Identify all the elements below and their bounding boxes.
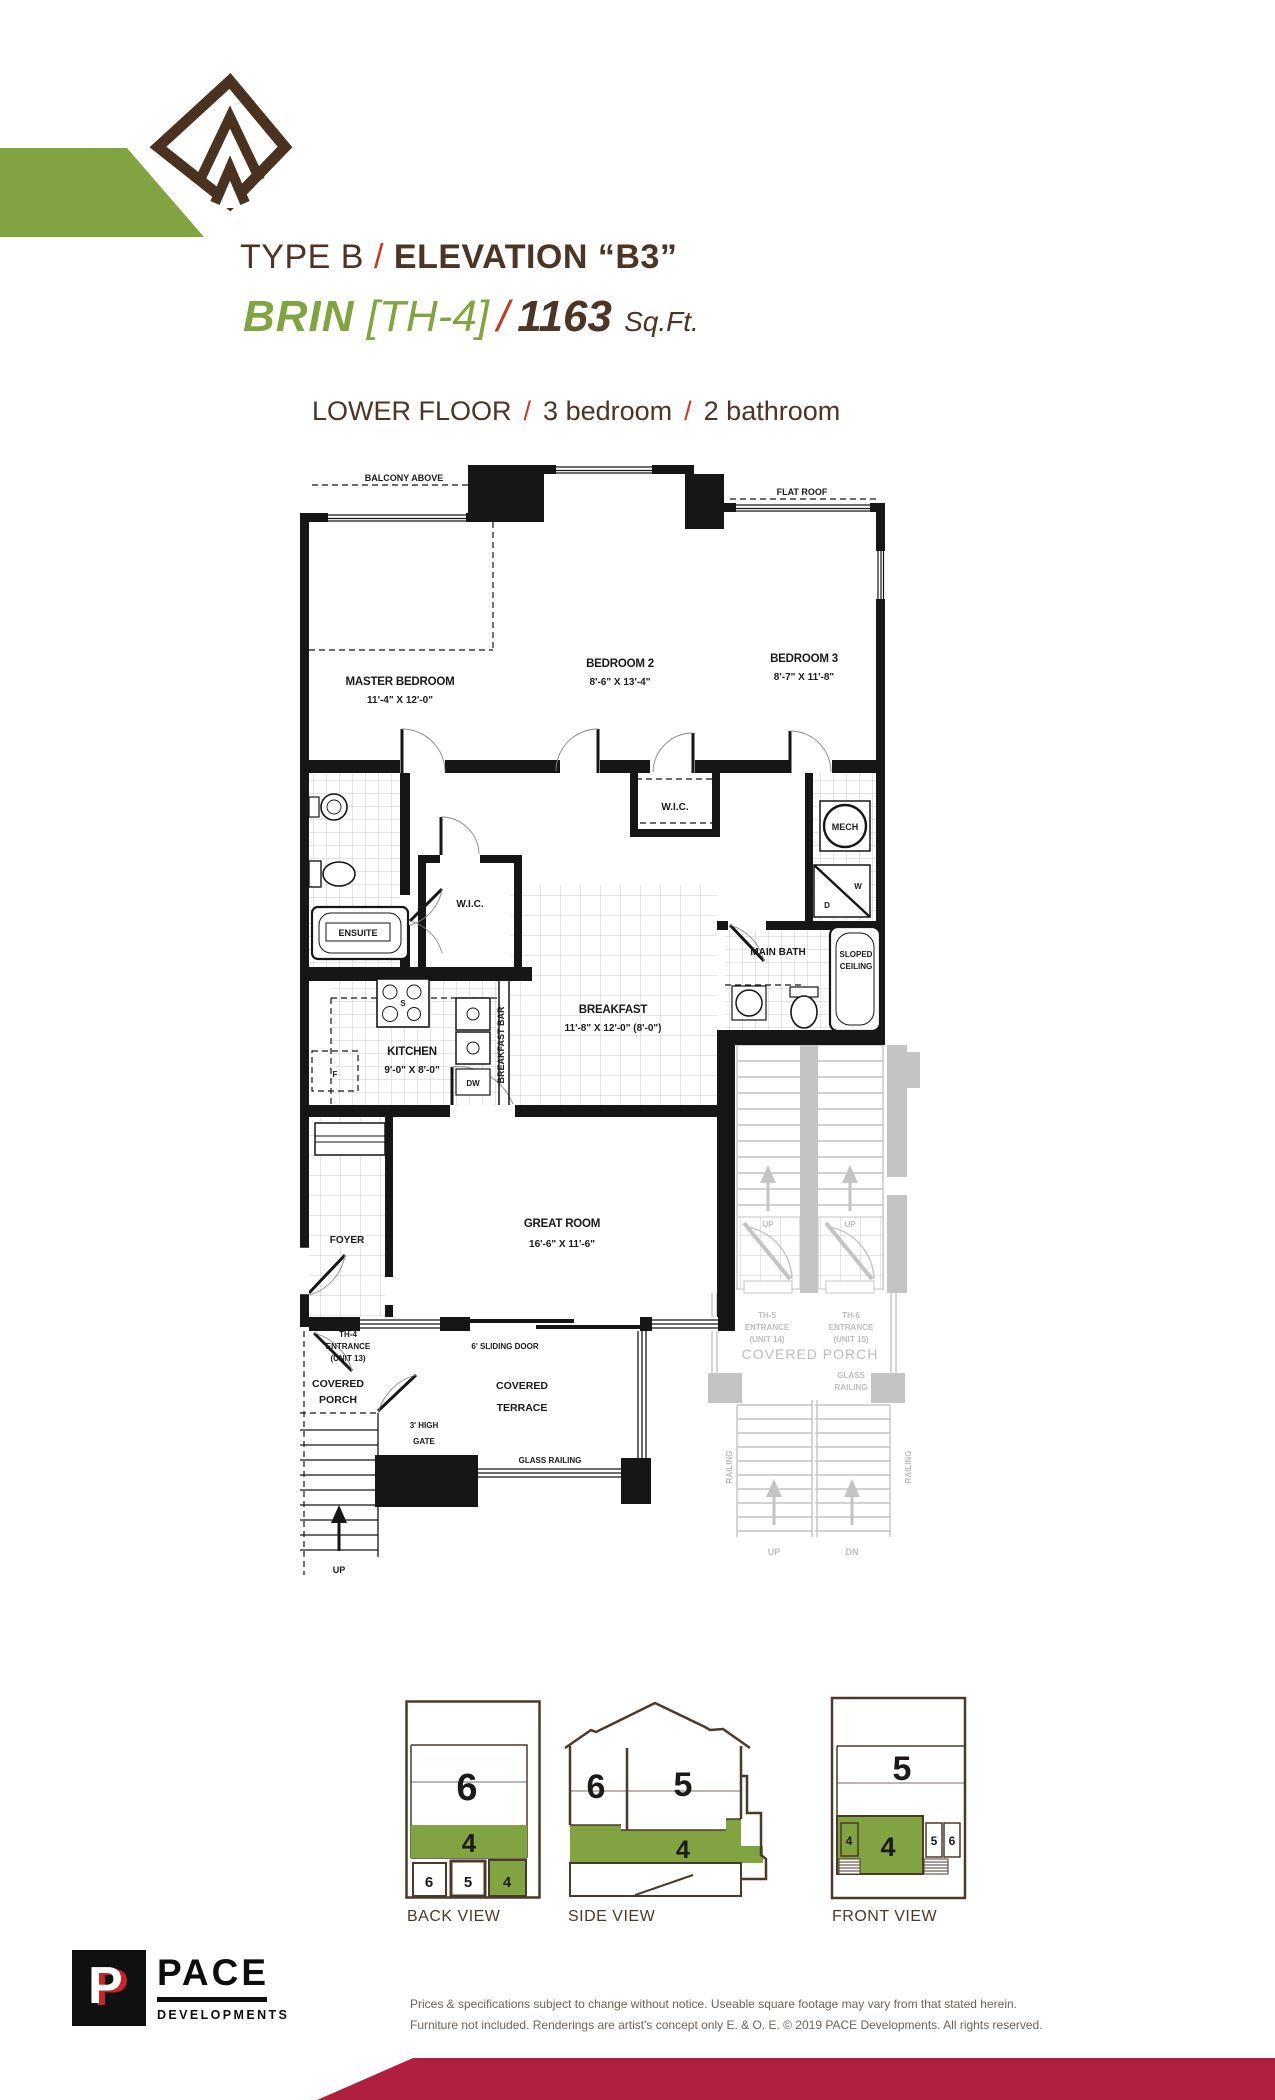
label-ensuite: ENSUITE bbox=[338, 928, 377, 938]
sqft-unit: Sq.Ft. bbox=[624, 306, 699, 337]
label-bedroom3-dims: 8'-7" X 11'-8" bbox=[774, 672, 835, 683]
label-terrace-1: COVERED bbox=[496, 1380, 548, 1392]
back-cell-6: 6 bbox=[425, 1874, 433, 1891]
label-th4: TH-4 bbox=[339, 1330, 357, 1339]
front-cell-5: 5 bbox=[931, 1834, 938, 1848]
label-master-bedroom: MASTER BEDROOM bbox=[345, 676, 454, 688]
label-th4-entrance: ENTRANCE bbox=[326, 1342, 371, 1351]
label-sloped: SLOPED bbox=[840, 950, 873, 959]
slash-3: / bbox=[512, 396, 544, 426]
label-breakfast: BREAKFAST bbox=[579, 1004, 648, 1016]
label-dryer: D bbox=[824, 901, 830, 910]
type-label: TYPE B bbox=[240, 238, 364, 276]
label-wic2: W.I.C. bbox=[661, 802, 688, 813]
label-kitchen-dims: 9'-0" X 8'-0" bbox=[384, 1065, 440, 1076]
slash-2: / bbox=[489, 292, 517, 341]
back-unit-4-band: 4 bbox=[462, 1828, 477, 1858]
label-wic1: W.I.C. bbox=[456, 899, 483, 910]
disclaimer-line-1: Prices & specifications subject to chang… bbox=[410, 1994, 1130, 2015]
neighbor-unit: UP UP TH-5 ENTRANCE (UNIT 14) TH-6 ENTRA… bbox=[708, 1045, 920, 1557]
bedroom-count: 3 bedroom bbox=[543, 396, 672, 426]
label-bedroom2-dims: 8'-6" X 13'-4" bbox=[590, 677, 651, 688]
label-covered: COVERED bbox=[312, 1378, 364, 1390]
label-bedroom2: BEDROOM 2 bbox=[586, 658, 654, 670]
sqft-value: 1163 bbox=[517, 292, 612, 341]
front-cell-4: 4 bbox=[846, 1834, 853, 1848]
back-cell-4: 4 bbox=[503, 1874, 512, 1891]
label-foyer: FOYER bbox=[330, 1235, 365, 1246]
side-unit-6: 6 bbox=[587, 1768, 606, 1806]
label-kitchen: KITCHEN bbox=[387, 1046, 437, 1058]
side-unit-5: 5 bbox=[674, 1766, 693, 1804]
brochure-page: TYPE B/ELEVATION “B3” BRIN [TH-4]/1163 S… bbox=[0, 0, 1275, 2100]
unit-label: [TH-4] bbox=[367, 292, 489, 341]
slash-4: / bbox=[672, 396, 704, 426]
title-line-1: TYPE B/ELEVATION “B3” bbox=[240, 238, 677, 277]
front-view-diagram: 5 4 4 5 6 FRONT VIEW bbox=[830, 1696, 972, 1928]
pace-logo-p-white: P bbox=[88, 1956, 123, 2016]
label-glass-railing: GLASS RAILING bbox=[519, 1456, 582, 1465]
floor-label: LOWER FLOOR bbox=[312, 396, 512, 426]
label-terrace-2: TERRACE bbox=[497, 1402, 548, 1414]
label-gate-1: 3' HIGH bbox=[410, 1421, 439, 1430]
slash-1: / bbox=[364, 238, 394, 276]
front-view-label: FRONT VIEW bbox=[832, 1908, 938, 1925]
neighbor-glass: GLASS bbox=[837, 1371, 865, 1380]
label-sliding-door: 6' SLIDING DOOR bbox=[471, 1342, 538, 1351]
label-balcony-above: BALCONY ABOVE bbox=[365, 473, 444, 483]
neighbor-covered-porch: COVERED PORCH bbox=[742, 1346, 879, 1362]
floor-plan: UP UP TH-5 ENTRANCE (UNIT 14) TH-6 ENTRA… bbox=[300, 455, 920, 1590]
label-master-dims: 11'-4" X 12'-0" bbox=[367, 695, 433, 706]
front-cell-6: 6 bbox=[949, 1834, 956, 1848]
label-great-room-dims: 16'-6" X 11'-6" bbox=[529, 1239, 595, 1250]
neighbor-up-label: UP bbox=[844, 1220, 856, 1229]
model-name: BRIN bbox=[243, 292, 355, 341]
neighbor-railing-left: RAILING bbox=[725, 1451, 734, 1484]
label-bedroom3: BEDROOM 3 bbox=[770, 653, 838, 665]
label-flat-roof: FLAT ROOF bbox=[777, 487, 828, 497]
pace-logo: P P bbox=[72, 1950, 146, 2026]
back-view-diagram: 6 4 6 5 4 BACK VIEW bbox=[405, 1700, 550, 1928]
label-great-room: GREAT ROOM bbox=[524, 1218, 600, 1230]
label-breakfast-bar: BREAKFAST BAR bbox=[496, 1006, 506, 1084]
label-th4-unit: (UNIT 13) bbox=[330, 1354, 365, 1363]
neighbor-up-label: UP bbox=[762, 1220, 774, 1229]
subtitle: LOWER FLOOR/3 bedroom/2 bathroom bbox=[312, 396, 840, 427]
side-view-label: SIDE VIEW bbox=[568, 1908, 656, 1925]
bathroom-count: 2 bathroom bbox=[704, 396, 841, 426]
th6-unit: (UNIT 15) bbox=[833, 1335, 868, 1344]
disclaimer: Prices & specifications subject to chang… bbox=[410, 1994, 1130, 2036]
th5-unit: (UNIT 14) bbox=[749, 1335, 784, 1344]
label-breakfast-dims: 11'-8" X 12'-0" (8'-0") bbox=[565, 1023, 662, 1034]
neighbor-up-stairs: UP bbox=[768, 1547, 781, 1557]
th6-entrance: ENTRANCE bbox=[829, 1323, 874, 1332]
brand-diamond-icon bbox=[148, 72, 308, 222]
pace-logo-bar bbox=[157, 1997, 267, 2002]
back-cell-5: 5 bbox=[464, 1874, 472, 1891]
side-view-diagram: 6 5 4 SIDE VIEW bbox=[563, 1696, 778, 1928]
front-unit-5: 5 bbox=[893, 1750, 912, 1788]
label-ceiling: CEILING bbox=[840, 962, 872, 971]
back-view-label: BACK VIEW bbox=[407, 1908, 501, 1925]
label-mech: MECH bbox=[832, 822, 859, 832]
side-unit-4-band: 4 bbox=[676, 1836, 690, 1864]
label-up: UP bbox=[333, 1565, 346, 1575]
pace-logo-subtitle: DEVELOPMENTS bbox=[157, 2008, 289, 2022]
pace-logo-name: PACE bbox=[157, 1952, 269, 1994]
label-dishwasher: DW bbox=[466, 1079, 480, 1088]
label-main-bath: MAIN BATH bbox=[750, 947, 805, 958]
front-unit-4-band: 4 bbox=[880, 1832, 895, 1862]
label-fridge: F bbox=[333, 1070, 338, 1079]
plan-stairs-terrace bbox=[300, 1331, 651, 1557]
neighbor-railing-right: RAILING bbox=[904, 1451, 913, 1484]
label-stove: S bbox=[400, 999, 406, 1008]
elevation-label: ELEVATION “B3” bbox=[394, 238, 677, 276]
label-porch: PORCH bbox=[319, 1394, 357, 1406]
neighbor-dn-stairs: DN bbox=[846, 1547, 859, 1557]
maroon-footer-band bbox=[0, 2058, 1275, 2100]
label-gate-2: GATE bbox=[413, 1437, 435, 1446]
disclaimer-line-2: Furniture not included. Renderings are a… bbox=[410, 2015, 1130, 2036]
th6-label: TH-6 bbox=[842, 1311, 860, 1320]
th5-entrance: ENTRANCE bbox=[745, 1323, 790, 1332]
title-line-2: BRIN [TH-4]/1163 Sq.Ft. bbox=[243, 292, 699, 342]
back-unit-6: 6 bbox=[456, 1767, 477, 1809]
th5-label: TH-5 bbox=[758, 1311, 776, 1320]
neighbor-glass-railing: RAILING bbox=[835, 1383, 868, 1392]
label-washer: W bbox=[854, 882, 862, 891]
